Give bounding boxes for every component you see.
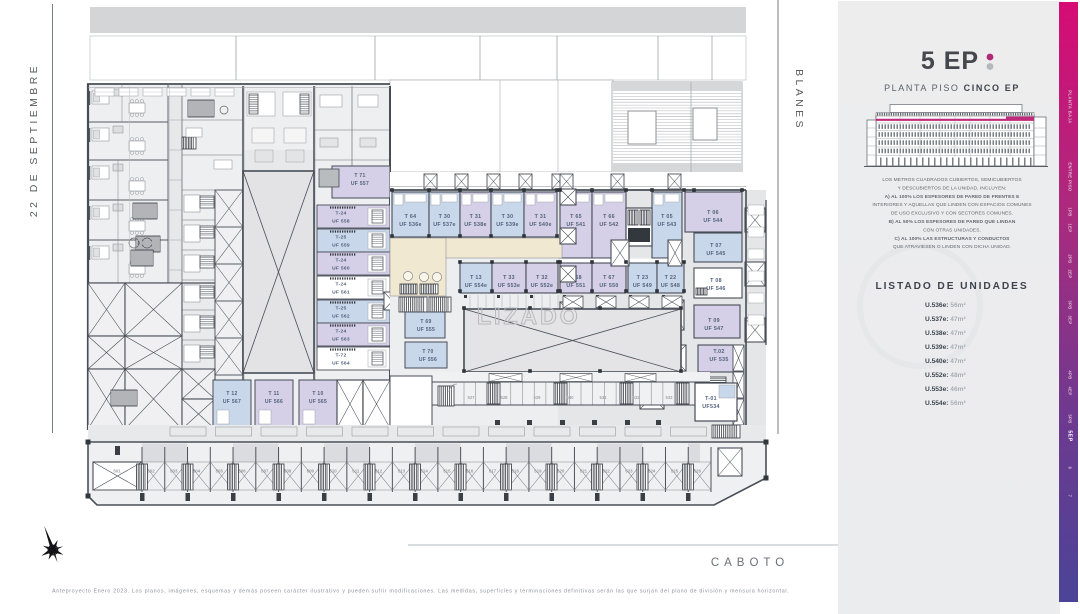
- svg-text:T 66: T 66: [603, 214, 615, 220]
- svg-text:T 06: T 06: [707, 210, 719, 216]
- svg-text:3PB: 3PB: [1068, 300, 1073, 309]
- svg-text:T 23: T 23: [637, 275, 649, 281]
- svg-text:506: 506: [238, 469, 246, 474]
- svg-text:ENTRE PISO: ENTRE PISO: [1068, 162, 1073, 192]
- svg-text:PLANTA BAJA: PLANTA BAJA: [1068, 90, 1073, 123]
- svg-text:UF 546: UF 546: [706, 286, 725, 292]
- svg-text:504: 504: [193, 469, 201, 474]
- svg-text:UF 566: UF 566: [265, 399, 283, 405]
- svg-text:UF 536e: UF 536e: [399, 222, 421, 228]
- svg-text:1PB: 1PB: [1068, 207, 1073, 216]
- svg-text:518: 518: [511, 469, 519, 474]
- svg-text:UF534: UF534: [702, 404, 719, 410]
- svg-text:DE USO EXCLUSIVO Y CON SECTORE: DE USO EXCLUSIVO Y CON SECTORES COMUNES.: [891, 211, 1013, 217]
- svg-text:UF 538e: UF 538e: [464, 222, 486, 228]
- svg-text:T-24: T-24: [336, 282, 347, 288]
- svg-text:T 11: T 11: [269, 391, 280, 397]
- svg-text:512: 512: [375, 469, 383, 474]
- svg-text:T 32: T 32: [536, 275, 548, 281]
- svg-text:T 64: T 64: [405, 214, 417, 220]
- svg-text:UF 543: UF 543: [657, 222, 676, 228]
- svg-text:T 05: T 05: [661, 214, 673, 220]
- svg-text:527: 527: [468, 395, 476, 400]
- svg-text:T-72: T-72: [336, 353, 347, 359]
- svg-text:503: 503: [170, 469, 178, 474]
- svg-text:UF 562: UF 562: [332, 314, 350, 320]
- svg-text:519: 519: [534, 469, 542, 474]
- svg-text:1EP: 1EP: [1068, 223, 1073, 232]
- svg-text:4PB: 4PB: [1068, 370, 1073, 379]
- svg-text:514: 514: [420, 469, 428, 474]
- svg-text:UF 555: UF 555: [417, 327, 435, 333]
- svg-text:UF 539e: UF 539e: [496, 222, 518, 228]
- svg-text:T-25: T-25: [336, 235, 347, 241]
- svg-text:UF 550: UF 550: [599, 283, 618, 289]
- svg-text:T 30: T 30: [439, 214, 451, 220]
- svg-text:UF 567: UF 567: [223, 399, 241, 405]
- svg-text:T 33: T 33: [503, 275, 515, 281]
- svg-text:UF 548: UF 548: [661, 283, 680, 289]
- svg-text:INTERIORES Y AQUELLAS QUE LIND: INTERIORES Y AQUELLAS QUE LINDEN CON ESP…: [872, 202, 1031, 208]
- svg-text:A) AL 100% LOS ESPESORES DE PA: A) AL 100% LOS ESPESORES DE PARED DE FRE…: [885, 194, 1021, 200]
- svg-text:UF 540e: UF 540e: [529, 222, 551, 228]
- svg-text:T-01: T-01: [705, 396, 717, 402]
- svg-text:T 69: T 69: [420, 319, 431, 325]
- svg-text:U.553e: 46m²: U.553e: 46m²: [925, 386, 966, 393]
- svg-text:507: 507: [261, 469, 269, 474]
- svg-text:UF 564: UF 564: [332, 361, 350, 367]
- svg-text:6: 6: [1068, 467, 1073, 470]
- svg-text:CON OTRAS UNIDADES.: CON OTRAS UNIDADES.: [923, 227, 981, 233]
- svg-text:LISTADO DE UNIDADES: LISTADO DE UNIDADES: [875, 281, 1028, 292]
- svg-text:531: 531: [600, 395, 608, 400]
- svg-text:U.539e: 47m²: U.539e: 47m²: [925, 344, 966, 351]
- svg-text:T 22: T 22: [665, 275, 677, 281]
- svg-text:522: 522: [603, 469, 611, 474]
- svg-text:520: 520: [557, 469, 565, 474]
- svg-text:U.540e: 47m²: U.540e: 47m²: [925, 358, 966, 365]
- svg-text:532: 532: [633, 395, 641, 400]
- svg-text:QUE ATRAVIESEN O LINDEN CON DI: QUE ATRAVIESEN O LINDEN CON DICHA UNIDAD…: [893, 244, 1011, 250]
- svg-text:7: 7: [1068, 495, 1073, 498]
- svg-text:510: 510: [329, 469, 337, 474]
- svg-text:T 13: T 13: [470, 275, 482, 281]
- svg-text:UF 560: UF 560: [332, 266, 350, 272]
- svg-text:523: 523: [625, 469, 633, 474]
- svg-text:UF 551: UF 551: [566, 283, 585, 289]
- svg-text:T 65: T 65: [570, 214, 582, 220]
- svg-text:T 67: T 67: [603, 275, 615, 281]
- svg-text:509: 509: [307, 469, 315, 474]
- svg-text:T-24: T-24: [336, 258, 347, 264]
- svg-text:UF 556: UF 556: [419, 357, 437, 363]
- svg-text:U.554e: 56m²: U.554e: 56m²: [925, 400, 966, 407]
- svg-text:UF 565: UF 565: [309, 399, 327, 405]
- svg-text:CABOTO: CABOTO: [711, 557, 789, 569]
- svg-text:530: 530: [567, 395, 575, 400]
- svg-text:3EP: 3EP: [1068, 315, 1073, 324]
- svg-text:T 08: T 08: [710, 278, 722, 284]
- svg-text:UF 554e: UF 554e: [465, 283, 487, 289]
- svg-text:T 31: T 31: [535, 214, 547, 220]
- svg-text:515: 515: [443, 469, 451, 474]
- svg-text:4EP: 4EP: [1068, 386, 1073, 395]
- svg-text:UF 535: UF 535: [709, 357, 728, 363]
- svg-text:5 EP: 5 EP: [921, 47, 979, 75]
- svg-text:2EP: 2EP: [1068, 269, 1073, 278]
- svg-text:U.537e: 47m²: U.537e: 47m²: [925, 316, 966, 323]
- svg-text:502: 502: [147, 469, 155, 474]
- svg-text:U.552e: 48m²: U.552e: 48m²: [925, 372, 966, 379]
- svg-text:T 30: T 30: [502, 214, 514, 220]
- svg-text:UF 545: UF 545: [706, 251, 725, 257]
- svg-text:UF 549: UF 549: [633, 283, 652, 289]
- svg-text:UF 561: UF 561: [332, 290, 350, 296]
- svg-text:5PB: 5PB: [1068, 414, 1073, 423]
- svg-text:T 31: T 31: [470, 214, 482, 220]
- svg-text:BLANES: BLANES: [793, 69, 805, 131]
- svg-text:513: 513: [398, 469, 406, 474]
- svg-text:U.536e: 56m²: U.536e: 56m²: [925, 302, 966, 309]
- svg-text:505: 505: [216, 469, 224, 474]
- svg-text:UF 563: UF 563: [332, 337, 350, 343]
- svg-text:T 07: T 07: [710, 243, 722, 249]
- svg-text:UF 553e: UF 553e: [498, 283, 520, 289]
- svg-text:526: 526: [694, 469, 702, 474]
- svg-text:U.538e: 47m²: U.538e: 47m²: [925, 330, 966, 337]
- svg-text:Y DESCUBIERTOS DE LA UNIDAD, I: Y DESCUBIERTOS DE LA UNIDAD, INCLUYEN:: [898, 185, 1007, 191]
- svg-text:T.02: T.02: [713, 349, 724, 355]
- svg-text:Anteproyecto Enero 2023. Los p: Anteproyecto Enero 2023. Los planos, imá…: [52, 589, 789, 595]
- svg-text:516: 516: [466, 469, 474, 474]
- svg-text:UF 541: UF 541: [566, 222, 585, 228]
- svg-text:5EP: 5EP: [1067, 430, 1073, 441]
- svg-text:UF 557: UF 557: [351, 181, 369, 187]
- svg-text:B) AL 50% LOS ESPESORES DE PAR: B) AL 50% LOS ESPESORES DE PARED QUE LIN…: [889, 219, 1016, 225]
- svg-text:T 09: T 09: [708, 318, 720, 324]
- svg-text:517: 517: [489, 469, 497, 474]
- svg-text:521: 521: [580, 469, 588, 474]
- svg-text:PLANTA PISO CINCO EP: PLANTA PISO CINCO EP: [884, 83, 1020, 93]
- svg-text:501: 501: [113, 469, 121, 474]
- svg-text:T 12: T 12: [226, 391, 237, 397]
- svg-text:529: 529: [534, 395, 542, 400]
- svg-text:525: 525: [671, 469, 679, 474]
- svg-text:LOS METROS CUADRADOS CUBIERTOS: LOS METROS CUADRADOS CUBIERTOS, SEMICUBI…: [882, 177, 1021, 183]
- svg-text:T-25: T-25: [336, 306, 347, 312]
- svg-text:UF 547: UF 547: [704, 326, 723, 332]
- svg-text:2PB: 2PB: [1068, 254, 1073, 263]
- svg-text:T 70: T 70: [422, 349, 433, 355]
- svg-text:T 71: T 71: [354, 173, 365, 179]
- svg-text:C) AL 100% LAS ESTRUCTURAS Y C: C) AL 100% LAS ESTRUCTURAS Y CONDUCTOS: [895, 236, 1011, 242]
- svg-text:22 DE SEPTIEMBRE: 22 DE SEPTIEMBRE: [28, 63, 40, 217]
- svg-text:UF 559: UF 559: [332, 243, 350, 249]
- svg-text:UF 537e: UF 537e: [433, 222, 455, 228]
- svg-text:UF 544: UF 544: [703, 218, 722, 224]
- svg-text:528: 528: [501, 395, 509, 400]
- svg-text:T 10: T 10: [312, 391, 323, 397]
- svg-text:511: 511: [352, 469, 360, 474]
- svg-text:T-24: T-24: [336, 329, 347, 335]
- svg-text:UF 552e: UF 552e: [531, 283, 553, 289]
- svg-text:533: 533: [666, 395, 674, 400]
- svg-text:UF 542: UF 542: [599, 222, 618, 228]
- svg-text:T-24: T-24: [336, 211, 347, 217]
- svg-text:508: 508: [284, 469, 292, 474]
- svg-text:524: 524: [648, 469, 656, 474]
- svg-text:UF 558: UF 558: [332, 219, 350, 225]
